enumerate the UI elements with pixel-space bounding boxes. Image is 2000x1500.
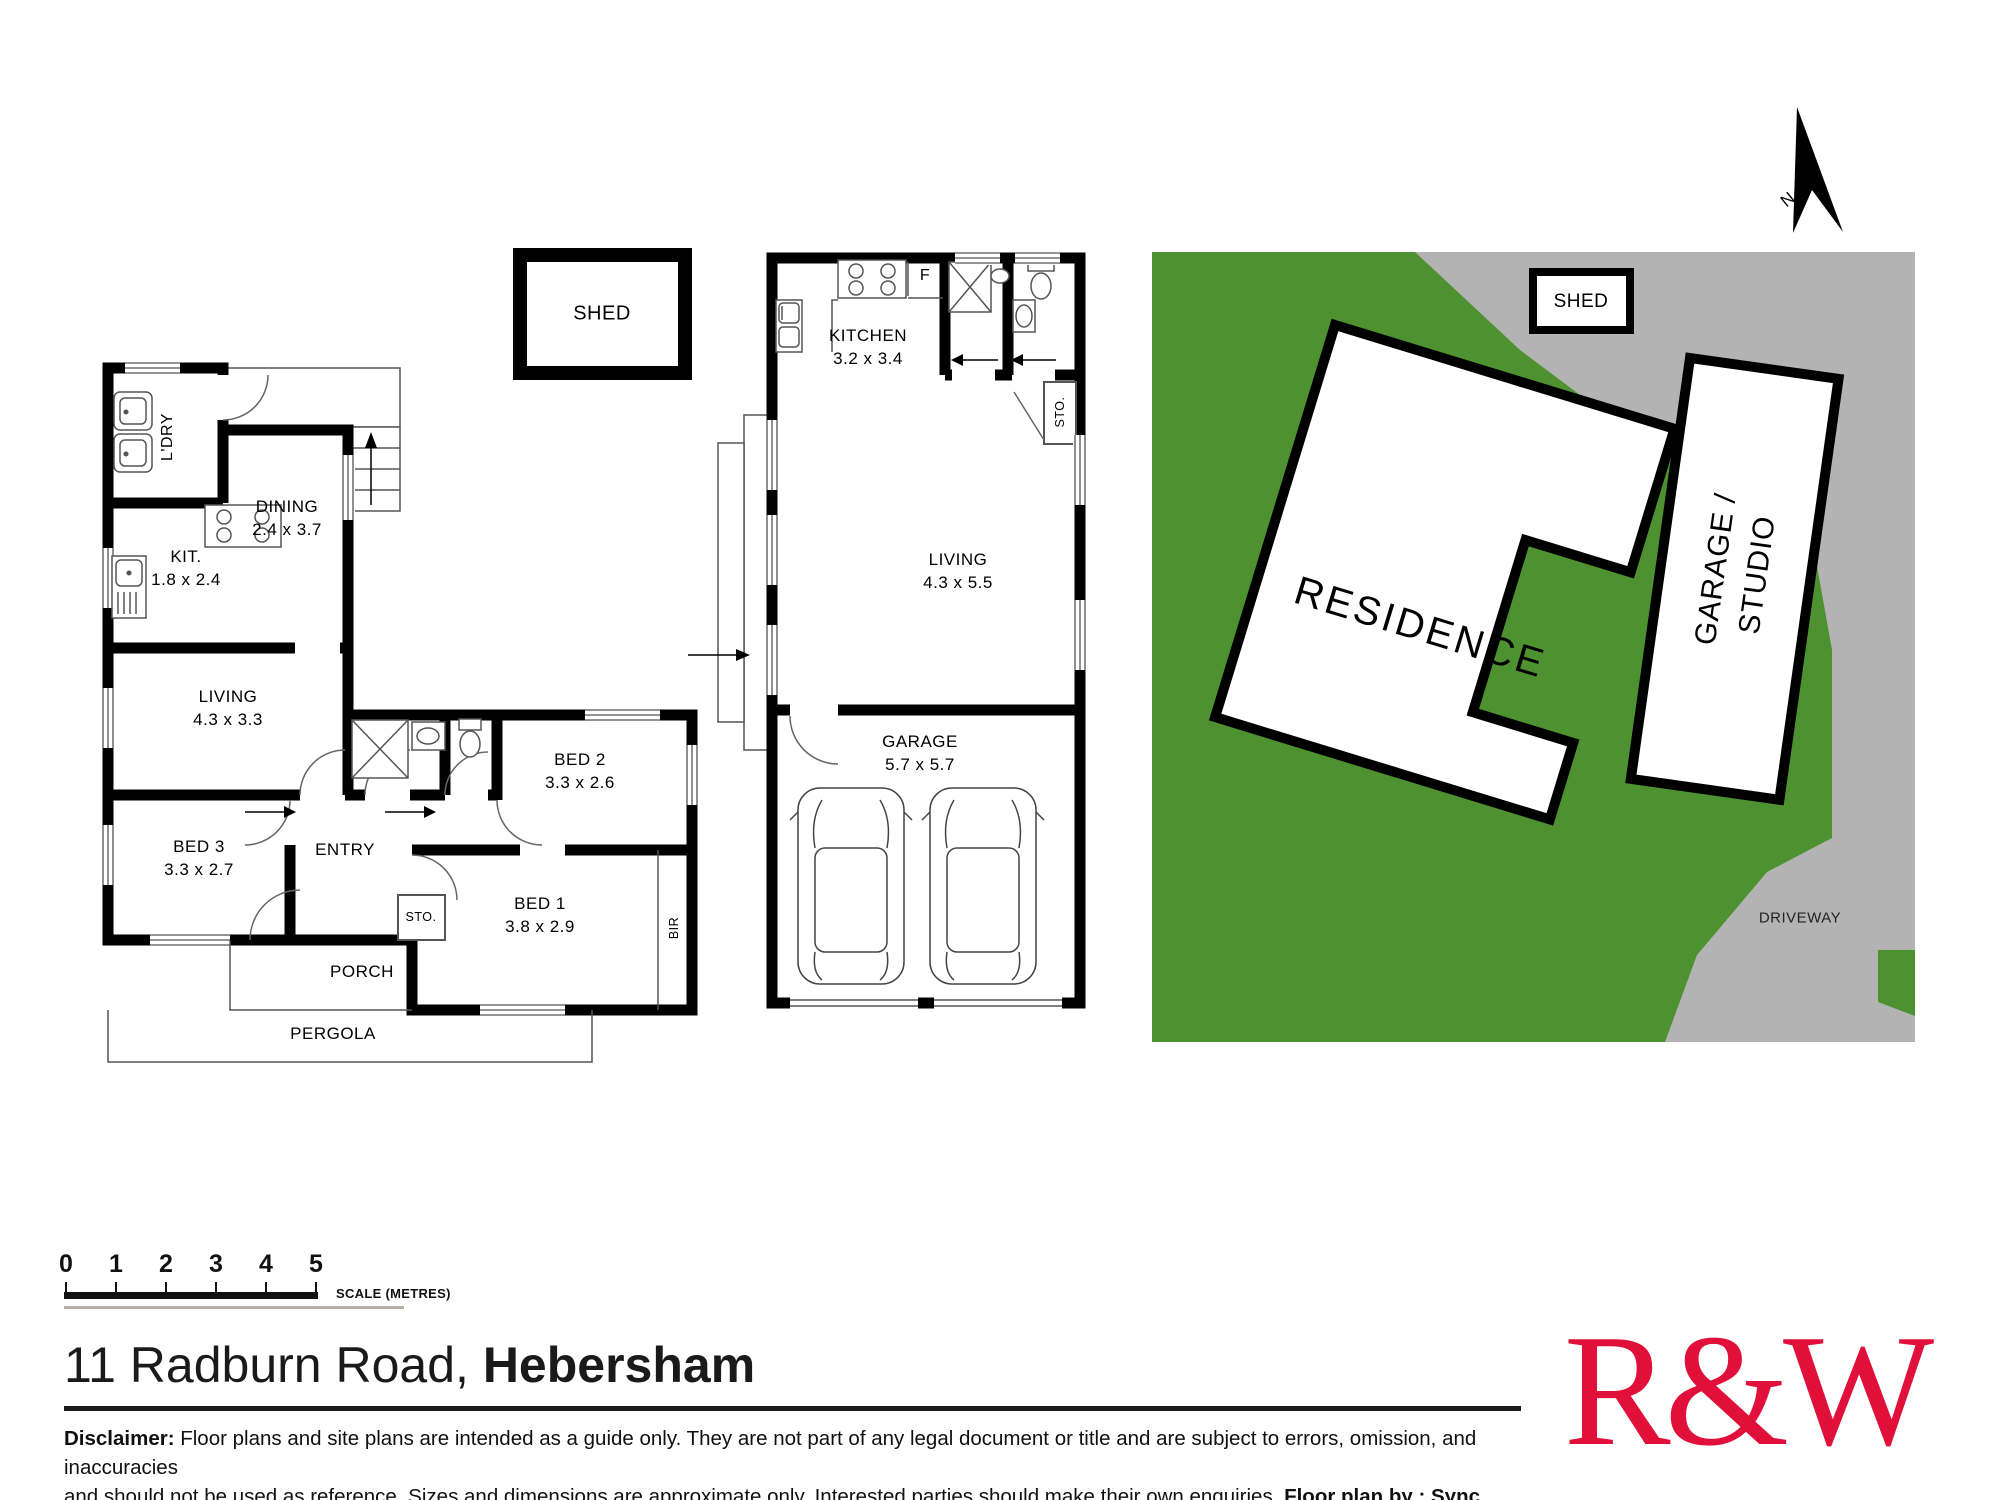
room-dims: 3.2 x 3.4 [829, 347, 907, 370]
north-arrow-icon [1793, 107, 1843, 233]
room-name: BED 1 [505, 892, 575, 915]
pergola-label: PERGOLA [290, 1024, 376, 1044]
door-gaps [218, 375, 229, 420]
living-left-label: LIVING 4.3 x 3.3 [193, 685, 263, 731]
scale-tick: 4 [259, 1250, 273, 1279]
agency-logo: R&W [1556, 1310, 1936, 1470]
scale-tick: 0 [59, 1250, 73, 1279]
living-middle-label: LIVING 4.3 x 5.5 [923, 548, 993, 594]
room-name: LIVING [923, 548, 993, 571]
room-dims: 5.7 x 5.7 [882, 753, 958, 776]
middle-deck [718, 415, 772, 750]
room-name: KITCHEN [829, 324, 907, 347]
disclaimer-label: Disclaimer: [64, 1427, 175, 1450]
bed2-label: BED 2 3.3 x 2.6 [545, 748, 615, 794]
left-shed-label: SHED [573, 303, 631, 326]
entry-label: ENTRY [315, 840, 375, 860]
kit-label: KIT. 1.8 x 2.4 [151, 545, 221, 591]
address-rule [64, 1406, 1521, 1411]
site-plan [1152, 107, 1915, 1042]
site-shed-label: SHED [1554, 291, 1609, 313]
fridge-label: F [920, 267, 930, 285]
left-plan [101, 255, 699, 1062]
driveway-label: DRIVEWAY [1759, 910, 1841, 927]
disclaimer-line1: Disclaimer: Floor plans and site plans a… [64, 1424, 1554, 1482]
address: 11 Radburn Road, Hebersham [64, 1336, 755, 1394]
scale-caption: SCALE (METRES) [336, 1286, 451, 1301]
bir-label: BIR [667, 917, 681, 939]
car-icon [790, 788, 912, 984]
address-street: 11 Radburn Road, [64, 1337, 483, 1393]
disclaimer: Disclaimer: Floor plans and site plans a… [64, 1424, 1554, 1500]
room-name: LIVING [193, 685, 263, 708]
room-name: KIT. [151, 545, 221, 568]
bed1-label: BED 1 3.8 x 2.9 [505, 892, 575, 938]
room-name: GARAGE [882, 730, 958, 753]
room-dims: 3.3 x 2.6 [545, 771, 615, 794]
scale-tick: 5 [309, 1250, 323, 1279]
scale-tick: 3 [209, 1250, 223, 1279]
porch-label: PORCH [330, 962, 394, 982]
sto-left-label: STO. [406, 910, 437, 924]
room-name: BED 2 [545, 748, 615, 771]
room-name: BED 3 [164, 835, 234, 858]
floorplan-graphics [0, 0, 2000, 1500]
room-dims: 4.3 x 5.5 [923, 571, 993, 594]
disclaimer-line2: and should not be used as reference. Siz… [64, 1482, 1554, 1500]
room-dims: 3.3 x 2.7 [164, 858, 234, 881]
floorplan-page: SHED L'DRY DINING 2.4 x 3.7 KIT. 1.8 x 2… [0, 0, 2000, 1500]
room-dims: 4.3 x 3.3 [193, 708, 263, 731]
room-name: DINING [252, 495, 322, 518]
room-dims: 2.4 x 3.7 [252, 518, 322, 541]
kitchen-sink-icon-left [112, 556, 146, 618]
dining-label: DINING 2.4 x 3.7 [252, 495, 322, 541]
sto-middle-label: STO. [1053, 397, 1067, 428]
kitchen-sink-icon-middle [776, 300, 802, 352]
room-dims: 1.8 x 2.4 [151, 568, 221, 591]
ldry-label: L'DRY [159, 413, 177, 461]
address-suburb: Hebersham [483, 1337, 755, 1393]
scale-tick: 2 [159, 1250, 173, 1279]
scale-tick: 1 [109, 1250, 123, 1279]
garage-label: GARAGE 5.7 x 5.7 [882, 730, 958, 776]
room-dims: 3.8 x 2.9 [505, 915, 575, 938]
bed3-label: BED 3 3.3 x 2.7 [164, 835, 234, 881]
kitchen-label: KITCHEN 3.2 x 3.4 [829, 324, 907, 370]
car-icon [922, 788, 1044, 984]
